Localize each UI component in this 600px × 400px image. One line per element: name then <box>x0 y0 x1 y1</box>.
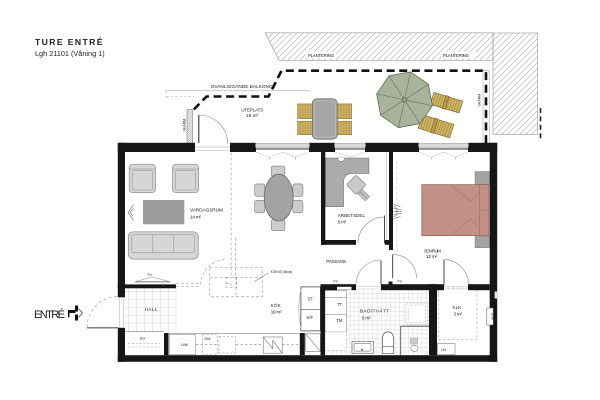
svg-text:SKÄRM: SKÄRM <box>183 119 187 132</box>
svg-text:FS: FS <box>398 280 402 284</box>
svg-text:SKÄRM: SKÄRM <box>478 94 482 107</box>
svg-text:EL/IT: EL/IT <box>490 313 494 320</box>
svg-text:VARDAGSRUM: VARDAGSRUM <box>190 207 223 213</box>
svg-text:K/F: K/F <box>307 315 314 320</box>
svg-text:6 m²: 6 m² <box>362 316 371 321</box>
svg-text:SOVRUM: SOVRUM <box>424 248 441 253</box>
svg-text:KÖK: KÖK <box>271 302 282 308</box>
svg-text:LB: LB <box>441 347 446 352</box>
svg-text:PASSAGE: PASSAGE <box>326 259 346 264</box>
svg-text:FS: FS <box>334 280 338 284</box>
svg-text:SG: SG <box>140 336 146 341</box>
svg-text:KLK: KLK <box>453 305 463 310</box>
svg-text:TURE ENTRÉ: TURE ENTRÉ <box>35 37 104 47</box>
svg-text:TT: TT <box>337 302 343 307</box>
svg-text:5 m²: 5 m² <box>338 220 347 225</box>
svg-text:BAD/TVÄTT: BAD/TVÄTT <box>360 308 389 314</box>
svg-text:KÖKSÖ (tillval): KÖKSÖ (tillval) <box>271 269 293 274</box>
svg-text:TM: TM <box>337 318 344 323</box>
svg-text:OVANLIGGANDE BALKONG: OVANLIGGANDE BALKONG <box>211 84 273 90</box>
svg-text:UTEPLATS: UTEPLATS <box>241 108 263 113</box>
svg-text:DM: DM <box>205 337 211 341</box>
svg-text:14 m²: 14 m² <box>190 215 201 221</box>
svg-text:12 m²: 12 m² <box>426 254 437 259</box>
svg-text:U/M: U/M <box>181 343 188 347</box>
svg-text:19 m²: 19 m² <box>271 310 282 315</box>
svg-text:ENTRÉ: ENTRÉ <box>34 308 65 321</box>
svg-text:PLANTERING: PLANTERING <box>308 53 335 58</box>
svg-text:ARBETSDEL: ARBETSDEL <box>338 213 366 218</box>
svg-text:PLANTERING: PLANTERING <box>443 53 470 58</box>
svg-text:ST: ST <box>308 296 314 301</box>
svg-text:Lgh 21101 (Våning 1): Lgh 21101 (Våning 1) <box>35 49 105 58</box>
svg-text:18 m²: 18 m² <box>246 113 258 118</box>
svg-text:HALL: HALL <box>145 307 158 312</box>
svg-text:3 m²: 3 m² <box>454 312 463 317</box>
svg-text:TV: TV <box>147 273 152 277</box>
